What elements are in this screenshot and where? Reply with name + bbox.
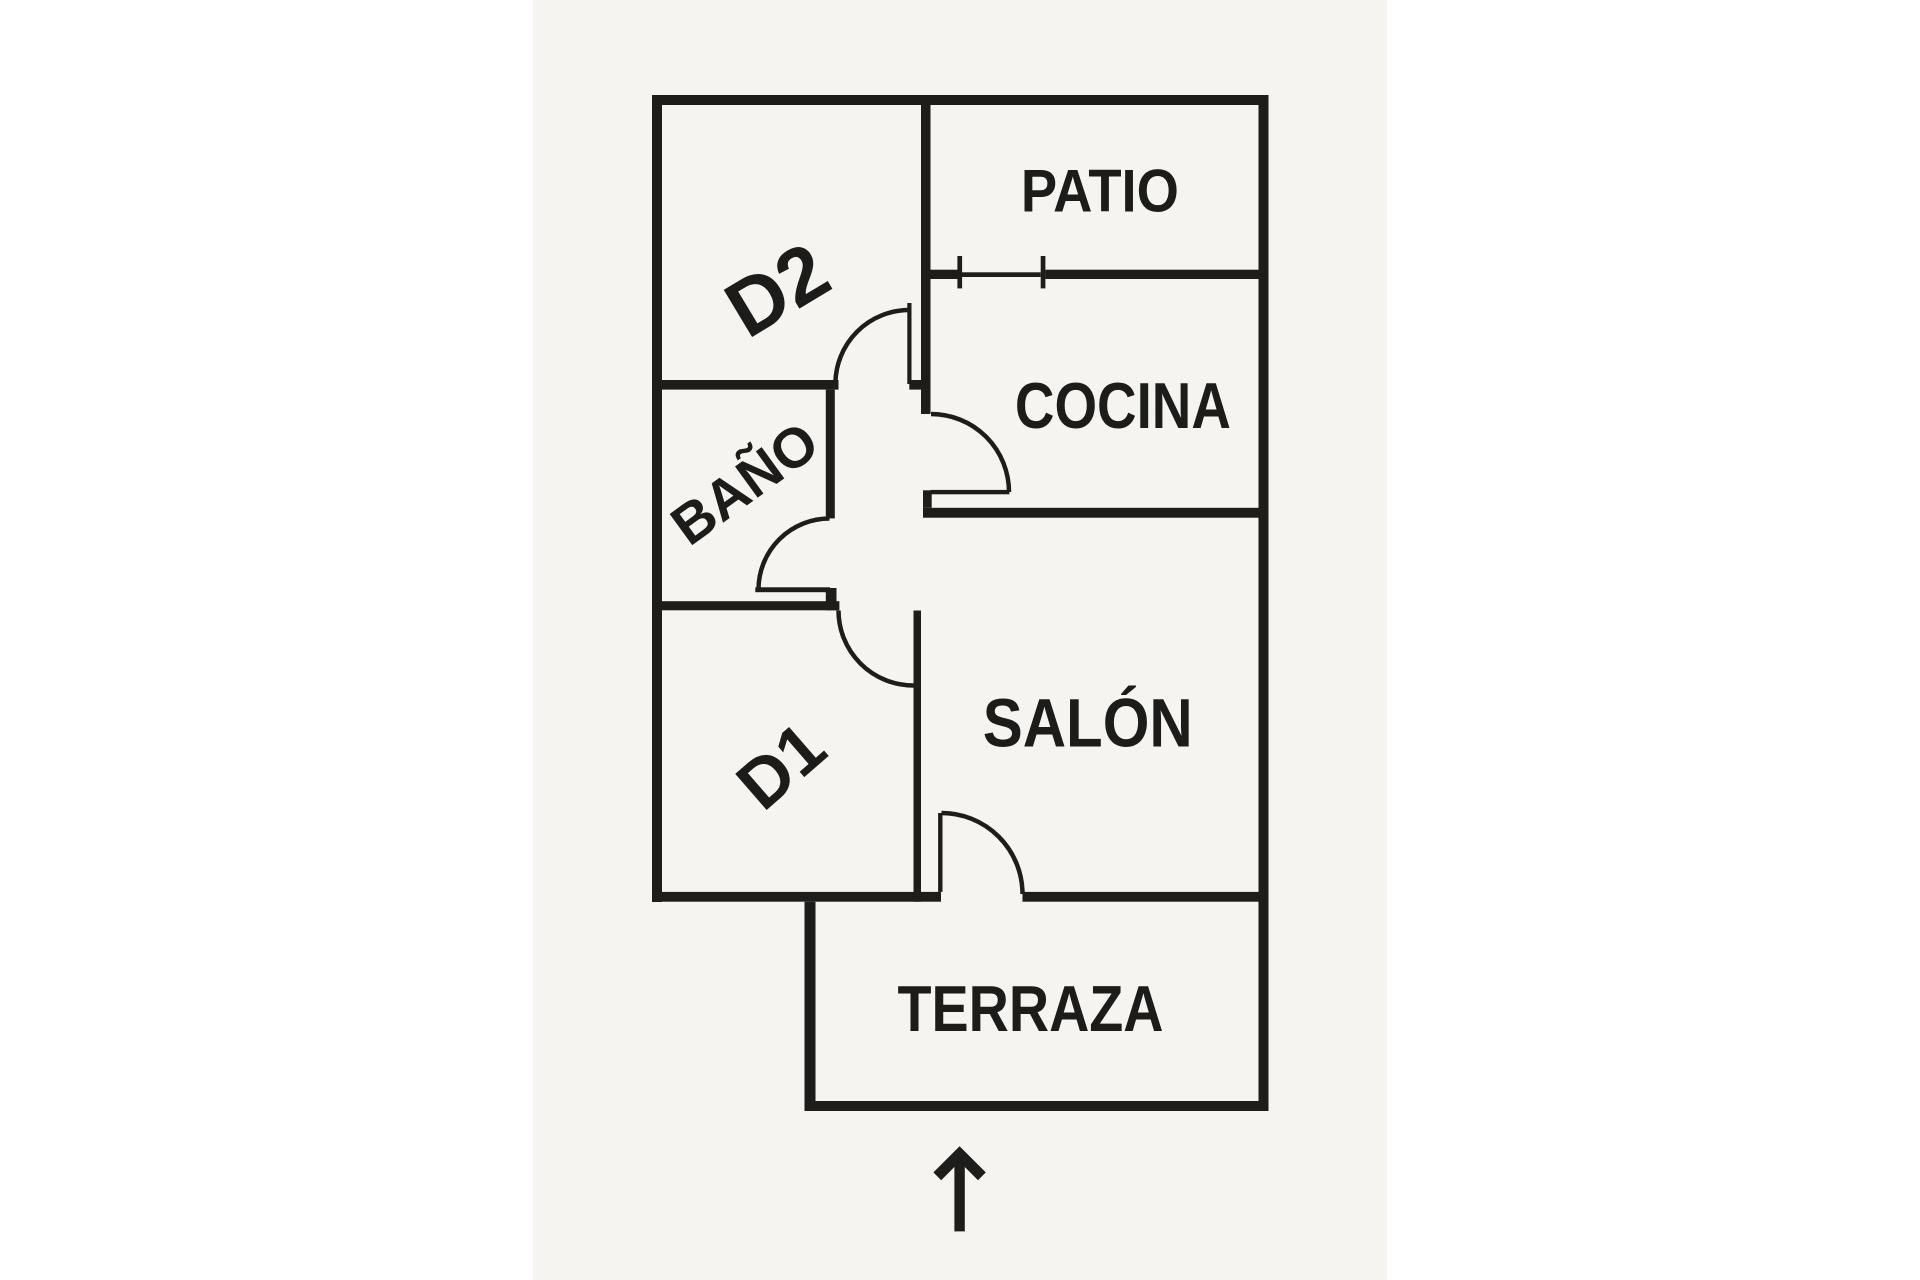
svg-text:TERRAZA: TERRAZA <box>898 973 1164 1045</box>
svg-text:SALÓN: SALÓN <box>983 685 1193 762</box>
svg-text:PATIO: PATIO <box>1021 158 1179 225</box>
svg-text:COCINA: COCINA <box>1015 370 1231 442</box>
